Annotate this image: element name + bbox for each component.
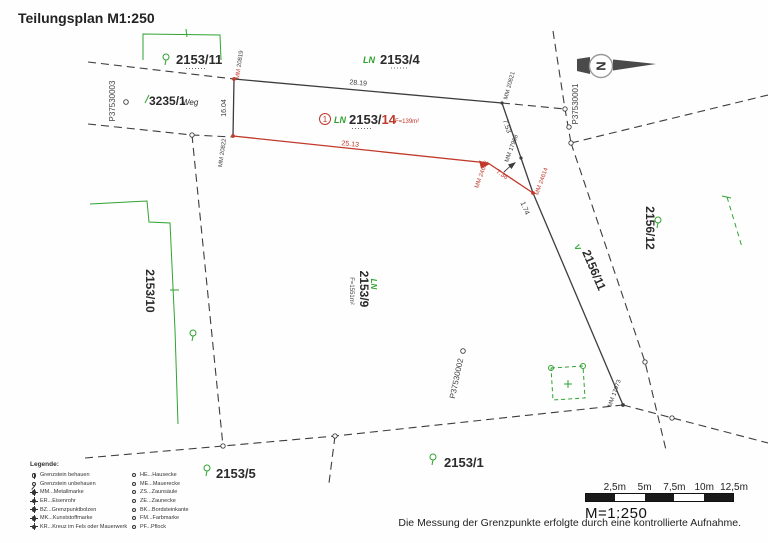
- point-mm17968: [519, 156, 522, 159]
- plan-sheet: Teilungsplan M1:250: [0, 0, 768, 543]
- scale-segment: [704, 494, 733, 501]
- legend-column-left: Grenzstein behauen Grenzstein unbehauen …: [30, 471, 130, 531]
- north-label: N: [594, 61, 609, 70]
- mark-number: 20821: [507, 70, 517, 88]
- distance-right-lower: 1.74: [518, 201, 530, 216]
- parcel-ln-2153-9: LN: [369, 279, 378, 290]
- node: [333, 434, 337, 438]
- boundary-south: [85, 405, 623, 458]
- circled-index-label: 1: [323, 115, 328, 124]
- node: [643, 360, 647, 364]
- legend-label: PF...Pflock: [140, 524, 166, 530]
- parcel-label-2153-4: 2153/4: [380, 52, 421, 67]
- green-dashed-right: [727, 197, 742, 247]
- boundary-south-east: [623, 405, 768, 443]
- node: [190, 133, 194, 137]
- parcel-label-2153-10: 2153/10: [143, 269, 157, 313]
- grenzstein-behauen-icon: [30, 473, 38, 478]
- scale-segment: [645, 494, 674, 501]
- parcel-ln-2153-4: LN: [363, 55, 375, 65]
- legend-item: Grenzstein behauen: [30, 471, 130, 480]
- parcel-label-2156-11: 2156/11: [579, 248, 609, 293]
- scale-segment: [615, 494, 644, 501]
- mark-label-mm24614: MM24614: [534, 167, 550, 197]
- boundary-weg-lower: [88, 124, 233, 137]
- mark-type: MM: [534, 185, 543, 196]
- legend: Legende: Grenzstein behauen Grenzstein u…: [30, 461, 189, 531]
- legend-label: ME...Mauerecke: [140, 481, 180, 487]
- parcel-label-2153-11: 2153/11: [176, 52, 222, 67]
- scale-bar-labels: 2,5m 5m 7,5m 10m 12,5m: [585, 482, 734, 493]
- distance-left: 16.04: [221, 99, 228, 117]
- legend-item: ZS...Zaunsäule: [130, 488, 189, 497]
- parcel-label-2153-9: 2153/9: [357, 271, 371, 308]
- scale-tick-label: 10m: [694, 482, 713, 493]
- scale-tick-label: 5m: [638, 482, 652, 493]
- legend-label: MM...Metallmarke: [40, 489, 84, 495]
- parcel-suffix-weg: Weg: [182, 98, 199, 107]
- boundary-2156-12-north: [571, 95, 768, 143]
- mark-type: MM: [503, 89, 511, 100]
- legend-label: KR...Kreuz im Fels oder Mauerwerk: [40, 524, 127, 530]
- boundary-west-2153-9: [192, 135, 223, 446]
- green-fence-tick: [186, 29, 187, 37]
- legend-label: MK...Kunststoffmarke: [40, 515, 92, 521]
- q-symbol-2153-10: [190, 330, 196, 341]
- measurement-note: Die Messung der Grenzpunkte erfolgte dur…: [398, 517, 741, 529]
- mark-type: MM: [235, 69, 242, 80]
- scale-bar: 2,5m 5m 7,5m 10m 12,5m M=1:250: [585, 482, 734, 522]
- node: [670, 416, 674, 420]
- north-arrow-needle: [613, 60, 656, 71]
- legend-item: MK...Kunststoffmarke: [30, 514, 130, 523]
- legend-item: FM...Farbmarke: [130, 514, 189, 523]
- mark-number: 24614: [538, 167, 550, 185]
- scale-tick-label: 7,5m: [663, 482, 685, 493]
- parcel-stem: 2153/: [349, 112, 382, 127]
- parcel-area-2153-9: F=1551m²: [348, 277, 354, 305]
- scale-tick-label: 12,5m: [720, 482, 748, 493]
- parcel-marker-2156-11: V: [572, 243, 583, 252]
- mark-type: MM: [218, 157, 225, 168]
- legend-item: BK...Bordsteinkante: [130, 505, 189, 514]
- kreuz-icon: [30, 525, 38, 530]
- parcel-label-3235-1: 3235/1: [149, 94, 186, 108]
- boundary-top-solid: [234, 79, 502, 103]
- parcel-area-2153-14: F=139m²: [395, 119, 419, 125]
- legend-label: FM...Farbmarke: [140, 515, 179, 521]
- distance-red-short: 7.36: [495, 168, 510, 181]
- legend-label: Grenzstein behauen: [40, 472, 90, 478]
- parcel-label-2153-1: 2153/1: [444, 455, 484, 470]
- point-p37530003-marker: [124, 100, 129, 105]
- parcel-label-2153-14: 2153/14: [349, 112, 397, 127]
- point-label-p37530003: P37530003: [108, 80, 117, 121]
- boundary-south-stub: [329, 436, 335, 483]
- scale-segment: [586, 494, 615, 501]
- mark-type: MM: [474, 178, 483, 189]
- q-symbol-2153-1: [430, 454, 436, 465]
- legend-heading: Legende:: [30, 461, 189, 468]
- distance-right-upper: 7.53: [501, 119, 512, 134]
- legend-label: ZE...Zaunecke: [140, 498, 176, 504]
- point-mm17973: [621, 403, 625, 407]
- legend-item: Grenzstein unbehauen: [30, 480, 130, 489]
- point-label-p37530002: P37530002: [448, 357, 465, 399]
- farbmarke-icon: [130, 516, 138, 520]
- boundary-right-upper-solid: [502, 103, 533, 193]
- point-p37530002-marker: [461, 349, 466, 354]
- mark-type: MM: [504, 152, 513, 163]
- grenzpunktbolzen-icon: [30, 507, 38, 512]
- legend-label: BK...Bordsteinkante: [140, 507, 189, 513]
- mark-label-mm20819: MM20819: [235, 50, 245, 80]
- grenzstein-unbehauen-icon: [30, 482, 38, 487]
- north-arrow-block: [577, 57, 590, 74]
- parcel-ln-2153-14: LN: [334, 115, 346, 125]
- legend-item: KR...Kreuz im Fels oder Mauerwerk: [30, 523, 130, 532]
- hausecke-icon: [130, 473, 138, 477]
- q-symbol-2153-11: [163, 54, 169, 65]
- eisenrohr-icon: [30, 499, 38, 504]
- boundary-right-long-solid: [533, 193, 623, 405]
- mark-type: MM: [607, 397, 616, 408]
- q-symbol-2153-5: [204, 465, 210, 476]
- legend-item: MM...Metallmarke: [30, 488, 130, 497]
- legend-label: ER...Eisenrohr: [40, 498, 76, 504]
- legend-item: ME...Mauerecke: [130, 480, 189, 489]
- legend-item: HE...Hausecke: [130, 471, 189, 480]
- pflock-icon: [130, 525, 138, 529]
- scale-bar-segments: [585, 493, 734, 502]
- legend-item: ER...Eisenrohr: [30, 497, 130, 506]
- point-label-p37530001: P37530001: [571, 83, 580, 124]
- zaunecke-icon: [130, 499, 138, 503]
- green-dashed-right-tick: [722, 196, 731, 198]
- mark-label-mm24612: MM24612: [474, 160, 490, 190]
- green-boundary-2153-10: [90, 201, 178, 424]
- zaunsaeule-icon: [130, 490, 138, 494]
- scale-tick-label: 2,5m: [604, 482, 626, 493]
- node: [567, 125, 571, 129]
- legend-item: PF...Pflock: [130, 523, 189, 532]
- boundary-2156-divider: [571, 143, 666, 450]
- node: [221, 444, 225, 448]
- distance-top: 28.19: [349, 79, 367, 88]
- legend-item: BZ...Grenzpunktbolzen: [30, 505, 130, 514]
- mark-label-mm20822: MM20822: [218, 138, 228, 168]
- legend-label: HE...Hausecke: [140, 472, 177, 478]
- bordsteinkante-icon: [130, 508, 138, 512]
- parcel-label-2156-12: 2156/12: [643, 206, 657, 250]
- legend-label: Grenzstein unbehauen: [40, 481, 96, 487]
- node: [569, 141, 573, 145]
- legend-label: ZS...Zaunsäule: [140, 489, 177, 495]
- north-arrow: N: [577, 55, 656, 78]
- node: [563, 107, 567, 111]
- metallmarke-icon: [30, 490, 38, 495]
- mauerecke-icon: [130, 482, 138, 486]
- kunststoffmarke-icon: [30, 516, 38, 521]
- legend-item: ZE...Zaunecke: [130, 497, 189, 506]
- mark-label-mm17973: MM17973: [607, 379, 623, 409]
- scale-segment: [674, 494, 703, 501]
- boundary-north-east-link: [502, 103, 565, 109]
- mark-label-mm20821: MM20821: [503, 70, 516, 100]
- boundary-left-solid: [233, 79, 234, 136]
- legend-label: BZ...Grenzpunktbolzen: [40, 507, 96, 513]
- parcel-label-2153-5: 2153/5: [216, 466, 256, 481]
- mark-number: 20819: [237, 50, 245, 68]
- point-mm20822: [231, 134, 235, 138]
- green-square-cross: [564, 380, 572, 388]
- point-mm20821: [500, 101, 503, 104]
- legend-column-right: HE...Hausecke ME...Mauerecke ZS...Zaunsä…: [130, 471, 189, 531]
- mark-number: 20822: [220, 138, 228, 156]
